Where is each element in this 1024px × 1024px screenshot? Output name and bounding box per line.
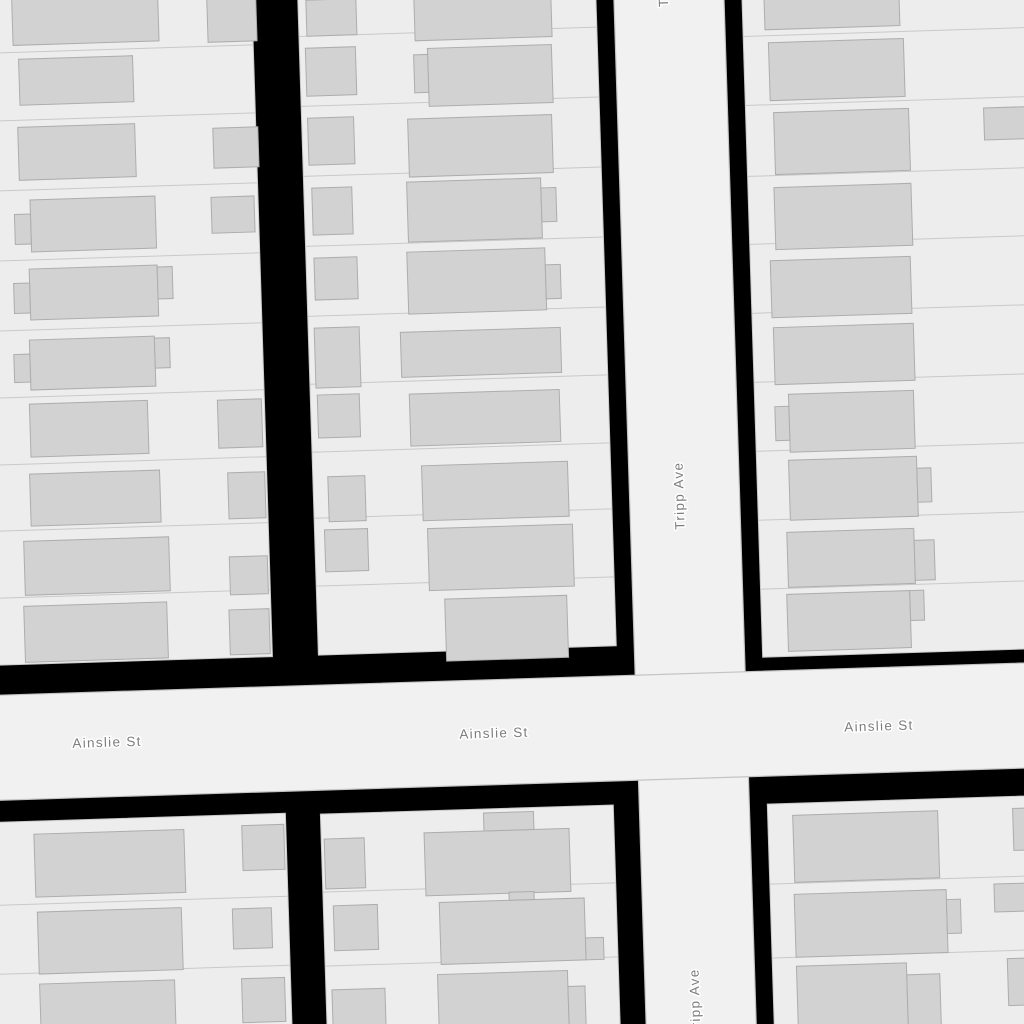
building-footprint (29, 400, 149, 457)
building-footprint (11, 0, 159, 45)
building-footprint (19, 56, 134, 106)
building-footprint (946, 899, 961, 933)
street-label-tripp-ave: Tripp Ave (686, 968, 703, 1024)
building-footprint (328, 476, 366, 522)
building-footprint (37, 908, 183, 974)
building-footprint (308, 117, 355, 165)
building-footprint (324, 838, 366, 889)
building-footprint (157, 267, 173, 299)
building-footprint (787, 591, 912, 652)
building-footprint (445, 595, 569, 661)
building-footprint (427, 45, 553, 107)
block-sw-west (0, 813, 293, 1024)
building-footprint (568, 986, 587, 1024)
building-footprint (229, 609, 270, 655)
building-footprint (770, 256, 912, 317)
building-footprint (545, 264, 561, 298)
building-footprint (910, 590, 925, 620)
building-footprint (407, 248, 547, 314)
building-footprint (408, 115, 554, 177)
building-footprint (763, 0, 899, 30)
building-footprint (424, 828, 571, 896)
building-footprint (332, 988, 386, 1024)
building-footprint (18, 124, 137, 181)
building-footprint (242, 824, 285, 870)
map-viewport[interactable]: Tripp AveTripp AveTripp AveAinslie StAin… (0, 0, 1024, 1024)
building-footprint (439, 898, 586, 965)
building-footprint (305, 47, 356, 97)
building-footprint (24, 537, 171, 596)
building-footprint (34, 829, 186, 897)
building-footprint (796, 963, 908, 1024)
street-intersection (636, 673, 747, 779)
building-footprint (413, 0, 552, 41)
building-footprint (217, 399, 262, 448)
building-footprint (414, 54, 429, 92)
street-label-ainslie-st: Ainslie St (459, 725, 529, 742)
building-footprint (314, 327, 361, 388)
building-footprint (400, 327, 561, 377)
building-footprint (773, 323, 915, 384)
building-footprint (509, 891, 534, 900)
building-footprint (312, 187, 353, 235)
street-label-tripp-ave: Tripp Ave (654, 0, 671, 7)
building-footprint (1007, 957, 1024, 1005)
street-label-ainslie-st: Ainslie St (844, 717, 914, 734)
building-footprint (213, 127, 259, 168)
building-footprint (917, 468, 932, 502)
building-footprint (775, 406, 790, 440)
building-footprint (422, 461, 570, 521)
building-footprint (24, 602, 169, 662)
building-footprint (211, 196, 255, 233)
building-footprint (407, 178, 543, 242)
building-footprint (768, 38, 905, 100)
building-footprint (29, 265, 159, 320)
building-footprint (585, 937, 604, 960)
building-footprint (409, 389, 561, 446)
building-footprint (789, 456, 919, 520)
building-footprint (232, 908, 272, 949)
building-footprint (787, 528, 916, 587)
building-footprint (30, 196, 157, 252)
building-footprint (914, 540, 935, 581)
building-footprint (14, 283, 31, 313)
building-footprint (40, 980, 177, 1024)
building-footprint (242, 977, 286, 1022)
block-sw-east (320, 805, 621, 1024)
block-nw-east (297, 0, 617, 665)
building-footprint (317, 394, 360, 438)
building-footprint (1013, 807, 1024, 850)
building-footprint (207, 0, 257, 42)
building-footprint (154, 338, 170, 368)
building-footprint (30, 470, 162, 526)
building-footprint (14, 214, 31, 244)
building-footprint (427, 524, 574, 591)
street-label-ainslie-st: Ainslie St (72, 734, 142, 751)
map-svg: Tripp AveTripp AveTripp AveAinslie StAin… (0, 0, 1024, 1024)
building-footprint (29, 336, 156, 390)
building-footprint (306, 0, 357, 36)
building-footprint (774, 183, 913, 249)
building-footprint (793, 811, 940, 883)
building-footprint (907, 974, 942, 1024)
building-footprint (984, 106, 1024, 139)
street-label-tripp-ave: Tripp Ave (671, 462, 688, 530)
building-footprint (314, 257, 358, 300)
building-footprint (788, 390, 915, 452)
building-footprint (333, 904, 378, 950)
building-footprint (437, 970, 569, 1024)
building-footprint (483, 811, 534, 831)
building-footprint (541, 187, 557, 221)
building-footprint (229, 556, 268, 595)
building-footprint (994, 883, 1024, 912)
block-ne (741, 0, 1024, 657)
building-footprint (324, 529, 368, 572)
building-footprint (228, 472, 266, 519)
building-footprint (14, 354, 31, 382)
building-footprint (774, 108, 911, 174)
building-footprint (794, 890, 948, 958)
block-nw-west (0, 0, 276, 666)
block-se (767, 793, 1024, 1024)
